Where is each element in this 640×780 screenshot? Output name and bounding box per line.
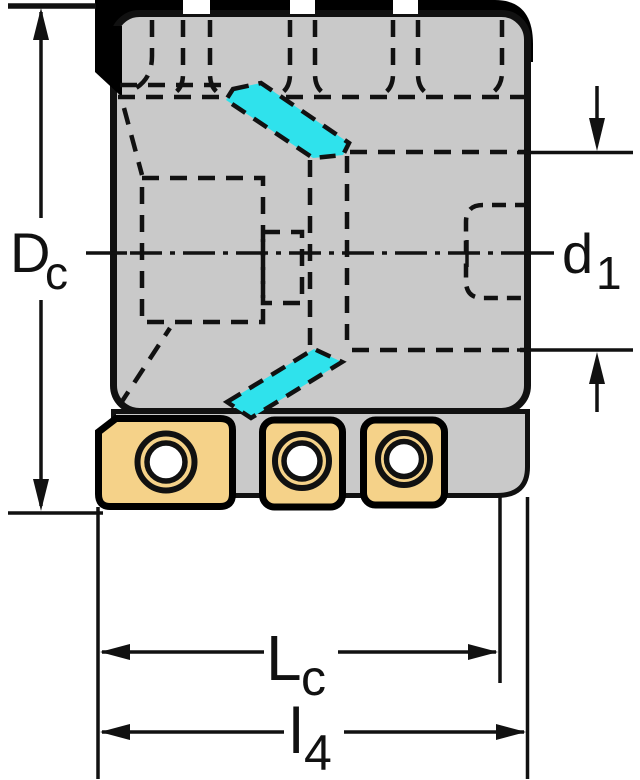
inserts [99, 419, 445, 508]
label-l4-main: l [289, 695, 303, 767]
drawing-stage: D c d 1 L c l 4 [0, 0, 640, 780]
pocket-notch [393, 0, 418, 14]
label-lc-sub: c [301, 650, 326, 706]
label-lc-main: L [266, 622, 302, 694]
label-l4-sub: 4 [304, 725, 332, 780]
label-d1-main: d [562, 222, 593, 285]
pocket-notch [290, 0, 315, 14]
pocket-notch [183, 0, 210, 14]
screw-hole-icon [275, 434, 329, 488]
label-dc-sub: c [45, 247, 68, 299]
screw-hole-inner-ring [387, 442, 422, 477]
screw-hole-icon [138, 434, 195, 491]
screw-hole-inner-ring [147, 443, 185, 481]
screw-hole-icon [378, 433, 430, 485]
label-d1-sub: 1 [596, 247, 622, 299]
screw-hole-inner-ring [284, 443, 320, 479]
milling-cutter-dimension-drawing: D c d 1 L c l 4 [0, 0, 640, 780]
